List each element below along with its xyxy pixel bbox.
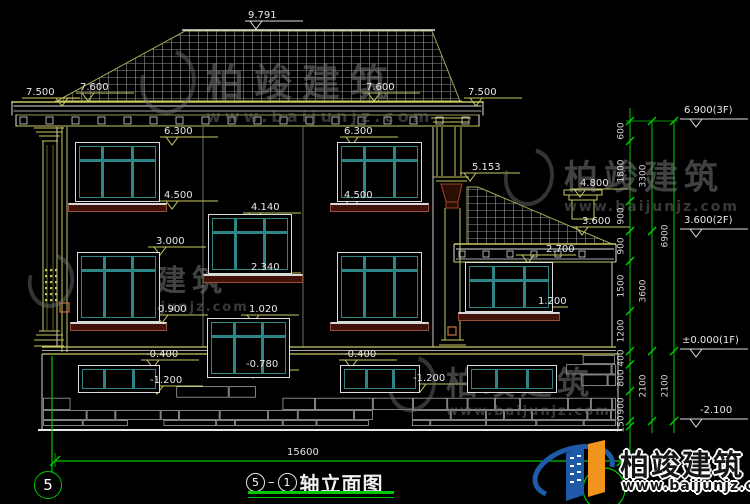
chain-dim-label: 900 [618, 207, 627, 224]
window-pane [104, 162, 131, 197]
left-pilaster [34, 128, 64, 346]
window-pane [134, 147, 155, 159]
window-pane [82, 272, 103, 317]
chain-dim-label: 900 [618, 398, 627, 415]
window-pane [106, 272, 132, 317]
level-label: 3.600(2F) [684, 216, 733, 226]
level-label: 3.600 [582, 217, 611, 227]
level-label: 1.200 [538, 297, 567, 307]
chain-dim-label: 900 [618, 237, 627, 254]
window-pane [236, 323, 262, 335]
chain-dim-label: 800 [618, 369, 627, 386]
window-pane [498, 370, 526, 388]
level-label: 2.700 [546, 245, 575, 255]
window-pane [495, 267, 523, 279]
window [340, 365, 420, 393]
window-glazing [471, 369, 553, 389]
level-label: 4.800 [580, 179, 609, 189]
window-pane [104, 147, 131, 159]
window-pane [366, 257, 393, 269]
window-sill [70, 322, 167, 331]
level-label: 3.000 [156, 237, 185, 247]
title-axis-circle-from: 5 [246, 473, 265, 492]
window-pane [342, 147, 363, 159]
level-label: 2.340 [251, 263, 280, 273]
window-pane [366, 147, 393, 159]
level-label: 4.500 [344, 191, 373, 201]
chimney [564, 190, 602, 219]
window-pane [83, 370, 103, 388]
window-pane [264, 323, 285, 335]
window-pane [266, 219, 287, 231]
window-pane [342, 272, 363, 317]
elevation-drawing-canvas: 柏竣建筑 www.baijunjz.com 柏竣建筑 www.baijunjz.… [0, 0, 750, 504]
level-label: -1.200 [150, 376, 182, 386]
overall-width-dimension: 15600 [287, 447, 319, 458]
level-label: 1.020 [249, 305, 278, 315]
window-pane [212, 338, 233, 373]
window-glazing [341, 256, 418, 318]
window-pane [106, 257, 132, 269]
window-glazing [344, 369, 416, 389]
level-label: 4.140 [251, 203, 280, 213]
level-label: 6.300 [344, 127, 373, 137]
level-label: 7.500 [468, 88, 497, 98]
window-pane [80, 147, 101, 159]
chain-dim-label: 1500 [618, 275, 627, 298]
level-label: 7.500 [26, 88, 55, 98]
window-sill [330, 322, 429, 331]
level-label: 4.500 [164, 191, 193, 201]
footer-logo: 柏竣建筑 www.baijunjz.com [528, 436, 750, 504]
window-pane [345, 370, 365, 388]
window [337, 252, 422, 322]
wing-eave-band [454, 244, 616, 262]
window [467, 365, 557, 393]
window-glazing [469, 266, 549, 308]
level-label: -0.780 [246, 360, 278, 370]
level-label: 6.900(3F) [684, 106, 733, 116]
chain-dim-label: 3600 [640, 280, 649, 303]
footer-logo-site: www.baijunjz.com [622, 478, 750, 494]
window-sill [68, 203, 167, 212]
window [75, 142, 160, 202]
window-pane [106, 370, 131, 388]
window-pane [529, 370, 552, 388]
chain-dim-label: 2100 [640, 375, 649, 398]
window-sill [330, 203, 429, 212]
chain-dim-label: 400 [618, 349, 627, 366]
level-label: 9.791 [248, 11, 277, 21]
window-pane [396, 272, 417, 317]
main-roof [55, 30, 462, 101]
chain-dim-label: 6900 [662, 225, 671, 248]
title-underline-thick [248, 491, 394, 494]
window-pane [366, 272, 393, 317]
level-label: -0.400 [146, 350, 178, 360]
chain-dim-label: 600 [618, 122, 627, 139]
window-glazing [81, 256, 156, 318]
axis-bubble-5-number: 5 [43, 476, 53, 494]
window-pane [213, 219, 234, 231]
window-glazing [82, 369, 156, 389]
window [77, 252, 160, 322]
window-pane [134, 272, 155, 317]
window-pane [495, 282, 523, 307]
chain-dim-label: 1200 [618, 320, 627, 343]
window-pane [237, 219, 263, 231]
window-pane [82, 257, 103, 269]
window-sill [203, 274, 303, 283]
window-pane [342, 257, 363, 269]
window-pane [526, 267, 548, 279]
title-underline-thin [248, 497, 394, 498]
chain-dim-label: 3300 [640, 165, 649, 188]
main-eave-band [12, 102, 483, 126]
level-label: ±0.000(1F) [682, 336, 739, 346]
chain-dim-label: 2100 [662, 375, 671, 398]
window-pane [396, 162, 417, 197]
window-glazing [79, 146, 156, 198]
level-label: -1.200 [413, 374, 445, 384]
level-label: -0.400 [344, 350, 376, 360]
level-label: 7.600 [366, 83, 395, 93]
title-axis-dash: – [268, 475, 275, 490]
window-pane [80, 162, 101, 197]
window [78, 365, 160, 393]
title-axis-circle-to: 1 [278, 473, 297, 492]
window-pane [470, 282, 492, 307]
level-label: 0.900 [158, 305, 187, 315]
level-label: -2.100 [700, 406, 732, 416]
window-pane [212, 323, 233, 335]
chain-dim-label: 1800 [618, 160, 627, 183]
level-label: 5.153 [472, 163, 501, 173]
window-pane [368, 370, 393, 388]
chain-dim-label: 150 [618, 415, 627, 432]
window-pane [134, 257, 155, 269]
window-pane [396, 257, 417, 269]
window-pane [134, 162, 155, 197]
level-label: 6.300 [164, 127, 193, 137]
axis-bubble-5: 5 [34, 471, 62, 499]
level-label: 7.600 [80, 83, 109, 93]
window-pane [470, 267, 492, 279]
window-pane [213, 234, 234, 269]
window-pane [396, 147, 417, 159]
window-sill [458, 312, 560, 321]
window-pane [472, 370, 495, 388]
rain-pipe-left [60, 127, 69, 352]
